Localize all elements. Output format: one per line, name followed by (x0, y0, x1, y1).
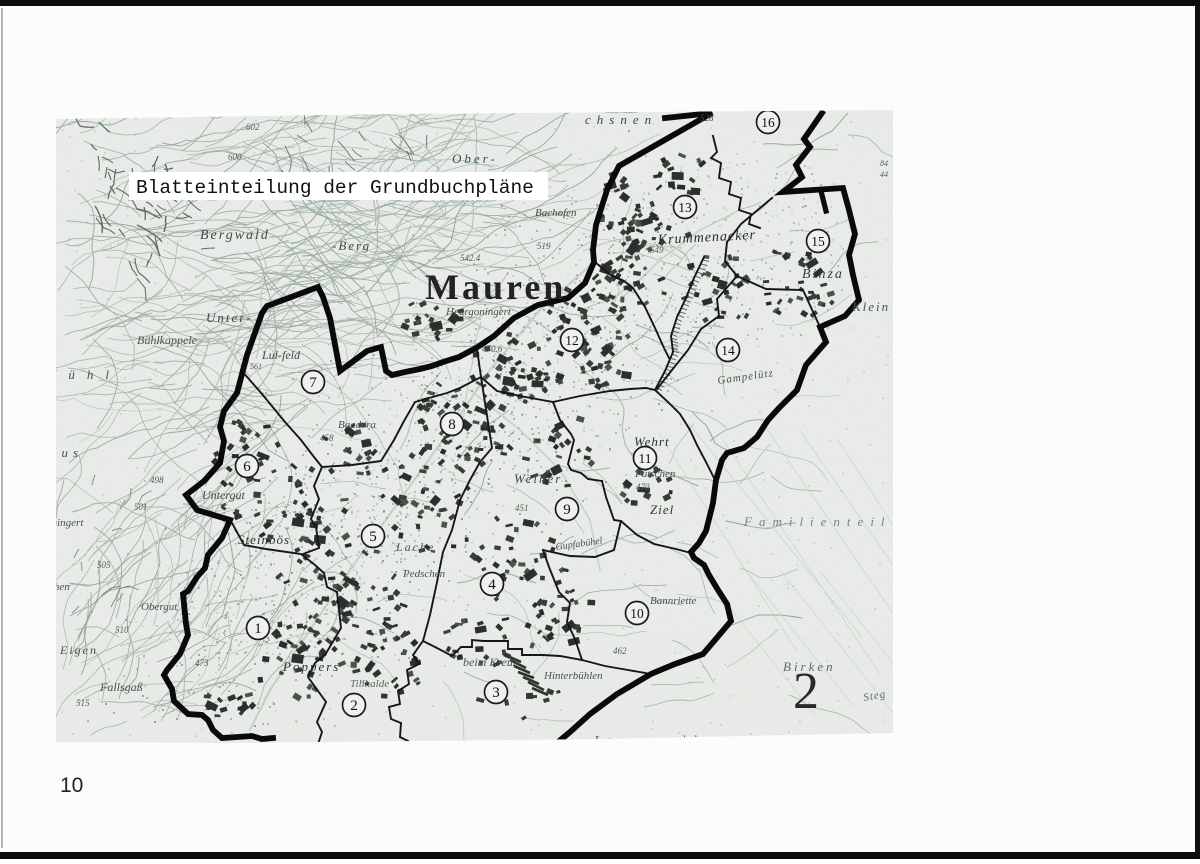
svg-text:15: 15 (811, 234, 825, 249)
svg-text:470: 470 (636, 482, 650, 492)
svg-text:10: 10 (60, 774, 83, 797)
svg-text:Bühlkappele: Bühlkappele (137, 333, 198, 347)
svg-text:1: 1 (254, 621, 262, 637)
svg-text:470.6: 470.6 (482, 344, 503, 354)
svg-text:2: 2 (350, 698, 358, 714)
svg-text:Lache: Lache (395, 540, 435, 554)
svg-text:Obergut: Obergut (141, 601, 178, 613)
svg-text:Binza: Binza (802, 267, 844, 282)
svg-text:6: 6 (243, 459, 251, 475)
svg-text:Hühl: Hühl (46, 367, 121, 382)
svg-text:501: 501 (134, 502, 148, 512)
svg-text:Mauren: Mauren (425, 267, 566, 307)
svg-text:Familienteil: Familienteil (743, 514, 892, 529)
svg-text:515: 515 (76, 698, 90, 708)
svg-text:451: 451 (515, 503, 529, 513)
svg-text:44: 44 (880, 170, 888, 179)
svg-text:11: 11 (639, 451, 652, 466)
svg-text:Ober-: Ober- (452, 151, 498, 166)
svg-text:Wehrt: Wehrt (634, 434, 670, 449)
svg-text:Bergwald: Bergwald (200, 228, 270, 243)
svg-text:beim Kreuz: beim Kreuz (463, 655, 518, 669)
svg-text:498: 498 (150, 475, 164, 485)
svg-text:Lul-feld: Lul-feld (261, 348, 301, 362)
svg-text:7: 7 (309, 375, 317, 391)
svg-text:4: 4 (488, 577, 496, 593)
svg-text:3: 3 (492, 685, 500, 701)
svg-text:458: 458 (320, 433, 334, 443)
svg-text:Untergut: Untergut (202, 488, 246, 502)
svg-text:Ziel: Ziel (650, 502, 674, 517)
svg-text:Hinterbühlen: Hinterbühlen (543, 670, 603, 682)
svg-text:462: 462 (613, 646, 627, 656)
svg-text:Steinbös: Steinbös (238, 532, 290, 547)
svg-text:505: 505 (97, 560, 111, 570)
svg-text:473: 473 (195, 658, 209, 668)
svg-text:Baadera: Baadera (338, 419, 376, 431)
svg-text:16: 16 (761, 115, 775, 130)
svg-text:Bannriette: Bannriette (650, 595, 697, 607)
svg-text:Heargoningert: Heargoningert (445, 306, 512, 318)
svg-text:Pütschen: Pütschen (634, 468, 676, 480)
svg-text:Poppers: Poppers (282, 659, 340, 674)
svg-text:542.4: 542.4 (460, 253, 481, 263)
svg-text:chsnen: chsnen (585, 112, 657, 127)
svg-text:5: 5 (369, 529, 377, 545)
svg-text:-Berg: -Berg (332, 238, 371, 253)
svg-text:561: 561 (250, 362, 262, 371)
svg-text:Unter-: Unter- (206, 310, 252, 325)
svg-text:2: 2 (793, 663, 819, 720)
svg-text:528: 528 (700, 113, 714, 123)
svg-text:10: 10 (630, 606, 644, 621)
svg-text:519: 519 (537, 241, 551, 251)
svg-text:8: 8 (448, 417, 456, 433)
svg-text:Tillhalde: Tillhalde (350, 678, 389, 690)
svg-text:Eigen: Eigen (59, 643, 98, 657)
svg-text:84: 84 (880, 159, 888, 168)
svg-text:600: 600 (228, 152, 242, 162)
svg-text:9: 9 (563, 502, 571, 518)
svg-text:Blatteinteilung der Grundbuchp: Blatteinteilung der Grundbuchpläne (136, 177, 534, 199)
svg-text:602: 602 (246, 122, 260, 132)
svg-text:12: 12 (565, 333, 579, 348)
svg-text:14: 14 (721, 343, 735, 358)
svg-text:Weiher: Weiher (514, 471, 562, 486)
svg-text:Bachofen: Bachofen (535, 207, 577, 219)
svg-text:549: 549 (650, 245, 664, 255)
svg-text:Fallsgaß: Fallsgaß (99, 680, 143, 694)
svg-text:510: 510 (115, 625, 129, 635)
svg-text:Pedschen: Pedschen (402, 568, 446, 580)
svg-text:Klein: Klein (851, 299, 890, 314)
svg-text:13: 13 (678, 200, 692, 215)
